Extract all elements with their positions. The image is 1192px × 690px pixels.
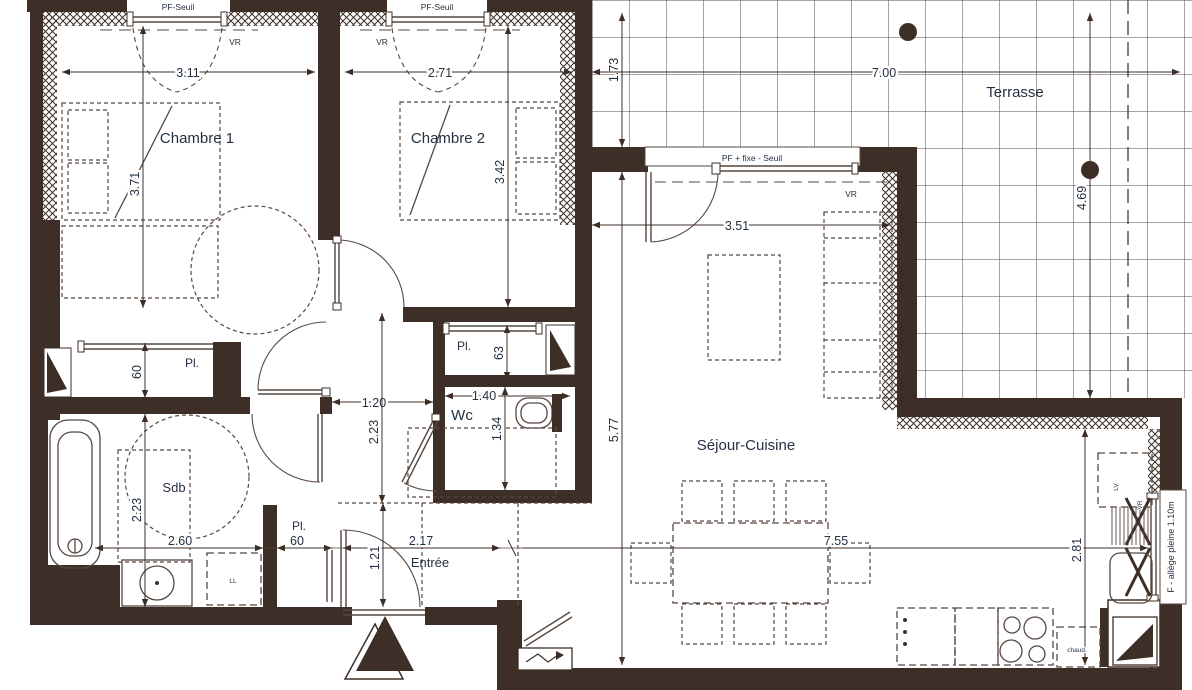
room-label-placard1: Pl. xyxy=(185,356,199,370)
dim-label: 1.34 xyxy=(490,417,504,441)
window1-label: PF-Seuil xyxy=(162,2,195,12)
vr2-label: VR xyxy=(376,37,388,47)
bathtub xyxy=(50,420,100,568)
dim-label: 1.21 xyxy=(368,546,382,570)
burner xyxy=(1000,640,1022,662)
burner xyxy=(1029,646,1045,662)
dim-label: 3.42 xyxy=(493,160,507,184)
vr4-label: VR xyxy=(1137,500,1144,509)
dim-entree-depth: 1.21 xyxy=(368,503,383,607)
room-label-wc: Wc xyxy=(451,407,473,424)
column-dot xyxy=(899,23,917,41)
dim-label: 1.73 xyxy=(607,58,621,82)
coffee-table xyxy=(708,255,780,360)
dining-table xyxy=(631,481,870,644)
dim-label: 2.23 xyxy=(130,498,144,522)
dim-label: 2.23 xyxy=(367,420,381,444)
dim-placard-left-depth: 60 xyxy=(130,343,145,398)
room-label-placard2: Pl. xyxy=(457,339,471,353)
room-label-chambre2: Chambre 2 xyxy=(411,130,485,147)
turning-circle-hall xyxy=(191,206,319,334)
kitchen-counter xyxy=(897,608,1100,667)
dim-label: 3.51 xyxy=(725,219,749,233)
north-arrow xyxy=(345,616,414,679)
room-label-chambre1: Chambre 1 xyxy=(160,130,234,147)
dim-label: 3.71 xyxy=(128,172,142,196)
dim-label: 4.69 xyxy=(1075,186,1089,210)
wc-clearance xyxy=(408,428,556,497)
room-label-terrasse: Terrasse xyxy=(986,84,1044,101)
washing-machine-label: LL xyxy=(229,578,237,585)
dim-kitchen-depth: 2.81 xyxy=(1070,429,1085,665)
toilet xyxy=(516,394,562,432)
kitchen-window-label: F - allège pleine 1.10m xyxy=(1166,501,1176,593)
dim-sejour-depth: 5.77 xyxy=(607,172,622,665)
dim-sejour-door-width: 3.51 xyxy=(592,219,890,233)
door-sejour-bay xyxy=(646,163,893,242)
dim-chambre2-depth: 3.42 xyxy=(493,26,508,307)
bay-label: PF + fixe - Seuil xyxy=(722,153,782,163)
dim-label: 2.60 xyxy=(168,534,192,548)
dim-label: 2.17 xyxy=(409,534,433,548)
room-label-sejour: Séjour-Cuisine xyxy=(697,437,795,454)
dim-label: 60 xyxy=(130,365,144,379)
washbasin xyxy=(122,560,192,606)
bed-chambre2 xyxy=(400,102,560,220)
dim-label: 7.55 xyxy=(824,534,848,548)
dim-wc-width: 1.40 xyxy=(445,389,570,403)
dim-placard-mid-depth: 63 xyxy=(492,325,507,380)
sofa xyxy=(824,212,892,398)
placard-bottom-rail xyxy=(327,550,332,602)
dim-chambre1-width: 3.11 xyxy=(62,66,315,80)
boiler-label: chaud. xyxy=(1067,647,1087,654)
room-label-sdb: Sdb xyxy=(162,480,185,495)
dim-label: 63 xyxy=(492,346,506,360)
vr3-label: VR xyxy=(845,189,857,199)
placard-mid-rail xyxy=(443,323,542,334)
dishwasher-label: LV xyxy=(1113,483,1120,491)
room-label-entree: Entrée xyxy=(411,555,449,570)
dim-label: 60 xyxy=(290,534,304,548)
door-sdb xyxy=(252,414,322,482)
dim-label: 2.81 xyxy=(1070,538,1084,562)
dim-label: 2.71 xyxy=(428,66,452,80)
door-chambre2 xyxy=(333,236,404,310)
dim-label: 3.11 xyxy=(176,66,199,80)
vr1-label: VR xyxy=(229,37,241,47)
burner xyxy=(1024,617,1046,639)
dim-label: 1.40 xyxy=(472,389,496,403)
burner xyxy=(1004,617,1020,633)
dim-label: 1.20 xyxy=(362,396,386,410)
floor-plan-canvas: 3.11 2.71 1.73 7.00 4.69 3.71 3.42 3.51 xyxy=(0,0,1192,690)
window2-label: PF-Seuil xyxy=(421,2,454,12)
dim-sdb-depth: 2.23 xyxy=(130,414,145,607)
floor-plan-page: 3.11 2.71 1.73 7.00 4.69 3.71 3.42 3.51 xyxy=(0,0,1192,690)
room-label-placard3: Pl. xyxy=(292,519,306,533)
electrical-niche xyxy=(518,612,572,670)
dim-chambre2-width: 2.71 xyxy=(345,66,572,80)
dim-label: 5.77 xyxy=(607,418,621,442)
dim-label: 7.00 xyxy=(872,66,896,80)
